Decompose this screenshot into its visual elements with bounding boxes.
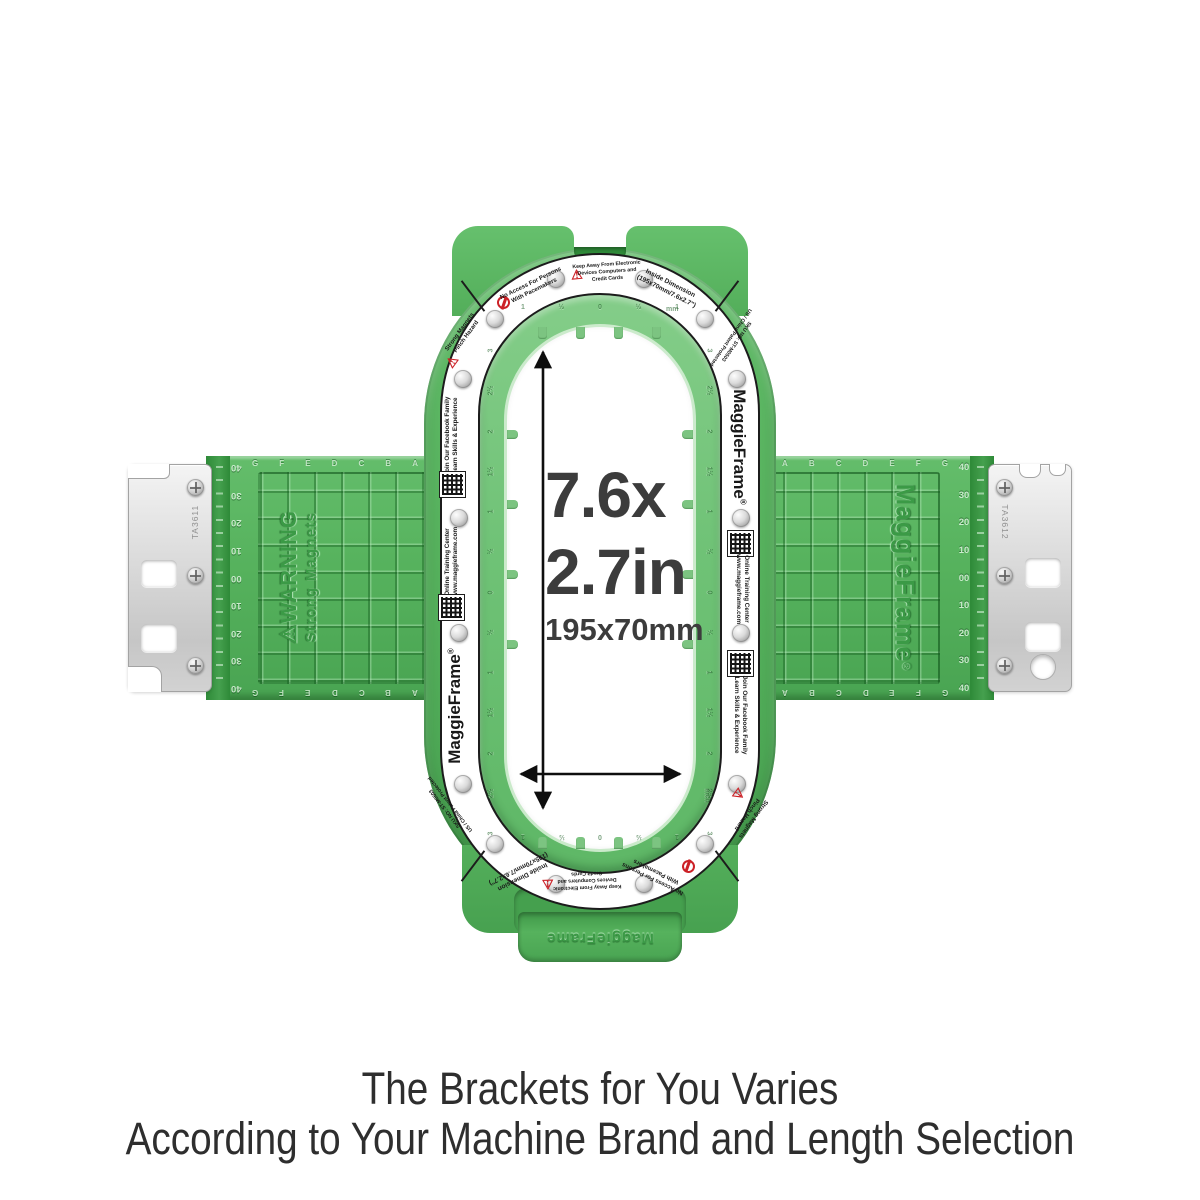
warning-triangle-icon: ⚠ <box>276 623 301 644</box>
magnet-screw-icon <box>696 310 714 328</box>
bracket-screw-icon <box>996 479 1013 496</box>
lip-ruler-number: 1 <box>706 510 713 514</box>
brand-text: MaggieFrame <box>730 389 749 499</box>
lip-ruler-top: 1½0½1 <box>521 304 679 314</box>
registered-mark: ® <box>739 499 748 505</box>
grid-letter: G <box>942 459 948 468</box>
lip-ruler-number: ½ <box>559 830 565 840</box>
ruler-number: 20 <box>959 628 970 639</box>
ruler-number: 40 <box>231 683 242 694</box>
dimension-mm-line: 195x70mm <box>545 614 704 645</box>
lip-notch <box>507 570 518 579</box>
training-center-label: Online Training Center www.maggieframe.c… <box>734 554 750 624</box>
grid-letter: D <box>332 688 338 697</box>
warning-subtitle: Strong Magnets <box>304 510 320 644</box>
ruler-number: 40 <box>231 462 242 473</box>
ruler-number: 30 <box>959 655 970 666</box>
ruler-number: 10 <box>231 600 242 611</box>
bracket-screw-icon <box>996 657 1013 674</box>
facebook-label: Join Our Facebook Family Learn Skills & … <box>444 397 460 476</box>
lip-ruler-bottom: 1½0½1 <box>521 830 679 840</box>
bracket-part-number: TA3611 <box>190 505 200 540</box>
lip-notch <box>652 327 661 339</box>
bracket-notch <box>1019 464 1041 478</box>
left-extension-arm: 403020100010203040 GFEDCBA GFEDCBA ⚠WARN… <box>206 456 448 700</box>
lip-notch <box>576 327 585 339</box>
right-arm-brand-emboss: MaggieFrame® <box>890 484 921 671</box>
lip-ruler-number: ½ <box>636 304 642 314</box>
bracket-slot <box>141 624 177 652</box>
brand-logo-emboss: MaggieFrame <box>891 484 921 663</box>
grid-letter: B <box>809 459 815 468</box>
bracket-screw-icon <box>187 479 204 496</box>
qr-code-icon <box>727 650 754 677</box>
magnet-screw-icon <box>696 835 714 853</box>
lip-ruler-number: 2½ <box>487 788 494 798</box>
grid-letter: C <box>836 688 842 697</box>
lip-ruler-number: 3 <box>706 349 713 353</box>
lip-ruler-number: 1 <box>488 671 495 675</box>
ruler-number: 20 <box>959 517 970 528</box>
grid-letter: E <box>305 459 310 468</box>
grid-letter: C <box>359 688 365 697</box>
dimension-inches-line2: 2.7in <box>545 540 704 604</box>
brand-label: MaggieFrame® <box>728 389 750 505</box>
magnet-screw-icon <box>454 370 472 388</box>
bracket-slot <box>1025 558 1061 587</box>
lip-ruler-number: 1 <box>706 671 713 675</box>
lip-ruler-number: 2 <box>706 429 713 433</box>
lip-ruler-number: ½ <box>559 304 565 314</box>
grid-letter: A <box>412 459 418 468</box>
grid-letter: C <box>359 459 365 468</box>
magnet-screw-icon <box>454 775 472 793</box>
ruler-number: 20 <box>231 628 242 639</box>
grid-letter: D <box>863 459 869 468</box>
bracket-screw-icon <box>996 567 1013 584</box>
magnet-screw-icon <box>486 310 504 328</box>
training-center-label: Online Training Center www.maggieframe.c… <box>444 527 460 597</box>
qr-code-icon <box>438 594 465 621</box>
lip-ruler-number: 0 <box>598 304 602 314</box>
magnet-screw-icon <box>486 835 504 853</box>
left-machine-bracket: TA3611 <box>128 464 212 692</box>
grid-letter: F <box>916 459 921 468</box>
ruler-number: 00 <box>231 573 242 584</box>
grid-letter: A <box>412 688 418 697</box>
magnet-screw-icon <box>450 624 468 642</box>
lip-ruler-left: 32½21½1½0½11½22½3 <box>484 347 498 837</box>
grid-letter: B <box>385 459 391 468</box>
lip-ruler-number: 1½ <box>705 466 712 476</box>
keep-away-label: Keep Away From Electronic Devices Comput… <box>553 869 622 892</box>
lip-notch <box>538 327 547 339</box>
product-image: 403020100010203040 GFEDCBA GFEDCBA ⚠WARN… <box>0 0 1200 1200</box>
bracket-corner-cut <box>128 464 170 479</box>
ruler-number: 20 <box>231 517 242 528</box>
left-arm-warning-emboss: ⚠WARNING Strong Magnets <box>276 510 320 644</box>
bracket-screw-icon <box>187 567 204 584</box>
dimension-text-block: 7.6x 2.7in 195x70mm <box>545 463 704 645</box>
grid-letter: A <box>782 459 788 468</box>
caption-line2: According to Your Machine Brand and Leng… <box>84 1114 1116 1164</box>
ruler-number: 10 <box>959 600 970 611</box>
bracket-hole <box>1030 654 1056 680</box>
right-arm-ruler-scale: 403020100010203040 <box>952 462 976 694</box>
bracket-corner-cut <box>128 666 162 692</box>
bracket-slot <box>1025 622 1061 651</box>
lip-ruler-unit-side: inch <box>704 788 711 802</box>
lip-ruler-number: ½ <box>636 830 642 840</box>
grid-letter: D <box>863 688 869 697</box>
lip-notch <box>507 500 518 509</box>
lip-ruler-right: 32½21½1½0½11½22½3 <box>702 347 716 837</box>
lip-ruler-number: 0 <box>706 590 713 594</box>
grid-letter: B <box>385 688 391 697</box>
lip-ruler-number: 1 <box>521 830 525 840</box>
lip-ruler-number: 2 <box>488 429 495 433</box>
qr-code-icon <box>727 530 754 557</box>
lip-notch <box>507 430 518 439</box>
lip-ruler-number: 1½ <box>487 466 494 476</box>
lip-ruler-number: 2½ <box>705 386 712 396</box>
tab-brand-emboss: MaggieFrame <box>546 930 654 947</box>
grid-letter: G <box>942 688 948 697</box>
grid-letter: D <box>332 459 338 468</box>
registered-mark: ® <box>900 662 912 670</box>
lip-ruler-number: 2½ <box>487 386 494 396</box>
lip-ruler-number: 0 <box>488 590 495 594</box>
grid-letter: F <box>916 688 921 697</box>
grid-letter: E <box>305 688 310 697</box>
ruler-number: 40 <box>959 462 970 473</box>
caption-line1: The Brackets for You Varies <box>84 1064 1116 1114</box>
left-arm-ruler-ticks <box>216 466 223 690</box>
lip-notch <box>682 430 693 439</box>
warning-title: WARNING <box>276 510 301 623</box>
bracket-slot <box>141 560 177 587</box>
lip-ruler-number: 2 <box>706 751 713 755</box>
lip-ruler-number: ½ <box>706 549 713 555</box>
magnet-screw-icon <box>732 624 750 642</box>
grid-letter: F <box>279 459 284 468</box>
grid-letter: E <box>889 459 894 468</box>
dimension-inches-line1: 7.6x <box>545 463 704 527</box>
ruler-number: 30 <box>959 490 970 501</box>
lip-ruler-number: 1 <box>521 304 525 314</box>
left-arm-letters-bottom: GFEDCBA <box>252 688 418 697</box>
lip-ruler-number: 1 <box>675 830 679 840</box>
grid-letter: G <box>252 459 258 468</box>
qr-code-icon <box>439 471 466 498</box>
ruler-number: 00 <box>959 573 970 584</box>
bracket-part-number: TA3612 <box>1000 504 1010 539</box>
ruler-number: 10 <box>231 545 242 556</box>
ruler-number: 30 <box>231 655 242 666</box>
bracket-screw-icon <box>187 657 204 674</box>
ruler-number: 10 <box>959 545 970 556</box>
brand-text: MaggieFrame <box>445 654 464 764</box>
lip-notch <box>614 327 623 339</box>
bracket-notch <box>1049 464 1066 476</box>
lip-ruler-number: ½ <box>488 629 495 635</box>
right-extension-arm: 403020100010203040 ABCDEFG ABCDEFG Maggi… <box>752 456 994 700</box>
right-arm-letters-top: ABCDEFG <box>782 459 948 468</box>
lip-ruler-number: 1½ <box>705 708 712 718</box>
ruler-number: 30 <box>231 490 242 501</box>
lip-ruler-number: ½ <box>488 549 495 555</box>
magnet-screw-icon <box>450 509 468 527</box>
left-arm-letters-top: GFEDCBA <box>252 459 418 468</box>
lip-ruler-unit-top: mm <box>666 306 678 313</box>
grid-letter: C <box>836 459 842 468</box>
lip-notch <box>507 640 518 649</box>
right-arm-letters-bottom: ABCDEFG <box>782 688 948 697</box>
right-machine-bracket: TA3612 <box>988 464 1072 692</box>
magnet-screw-icon <box>732 509 750 527</box>
left-arm-ruler-scale: 403020100010203040 <box>224 462 248 694</box>
grid-letter: A <box>782 688 788 697</box>
ruler-number: 40 <box>959 683 970 694</box>
grid-letter: G <box>252 688 258 697</box>
lip-ruler-number: 0 <box>598 830 602 840</box>
brand-label: MaggieFrame® <box>444 648 466 764</box>
lip-ruler-number: ½ <box>706 629 713 635</box>
caption: The Brackets for You Varies According to… <box>0 1064 1200 1163</box>
magnet-screw-icon <box>728 370 746 388</box>
lip-ruler-number: 3 <box>488 349 495 353</box>
lip-ruler-number: 2 <box>488 751 495 755</box>
lip-ruler-number: 1 <box>488 510 495 514</box>
right-arm-ruler-ticks <box>977 466 984 690</box>
facebook-label: Join Our Facebook Family Learn Skills & … <box>732 676 748 755</box>
grid-letter: E <box>889 688 894 697</box>
hoop-bottom-tab: MaggieFrame <box>518 912 682 962</box>
grid-letter: B <box>809 688 815 697</box>
lip-ruler-number: 1½ <box>487 708 494 718</box>
grid-letter: F <box>279 688 284 697</box>
registered-mark: ® <box>446 648 455 654</box>
